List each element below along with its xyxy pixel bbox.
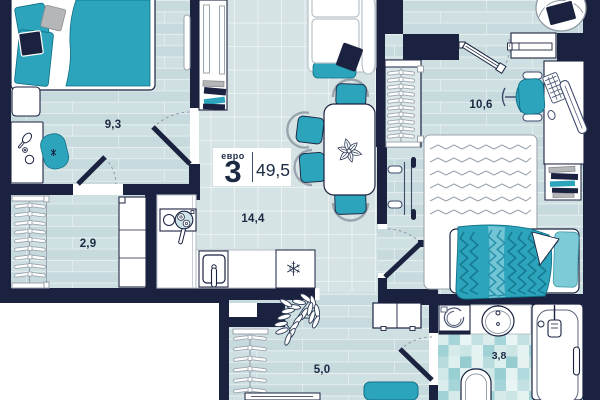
svg-text:3,8: 3,8	[492, 350, 507, 362]
svg-text:49,5: 49,5	[256, 160, 290, 180]
svg-text:2,9: 2,9	[80, 238, 97, 250]
svg-text:5,0: 5,0	[314, 364, 331, 376]
svg-text:9,3: 9,3	[105, 119, 122, 131]
svg-text:10,6: 10,6	[469, 99, 492, 111]
svg-text:14,4: 14,4	[241, 213, 265, 225]
svg-text:3: 3	[224, 154, 241, 189]
